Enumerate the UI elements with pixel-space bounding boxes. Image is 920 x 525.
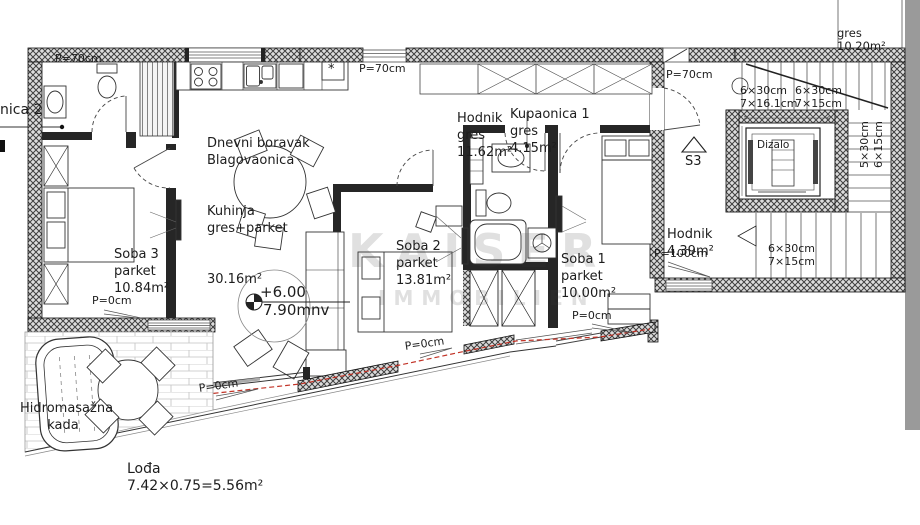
vent-shafts xyxy=(470,270,535,326)
label-living-room: Dnevni boravakBlagovaonica Kuhinjagres+p… xyxy=(207,101,310,305)
label-level-elevation: +6.00 xyxy=(260,283,306,302)
label-loda: Lođa7.42×0.75=5.56m² xyxy=(127,428,263,511)
wc-fixtures xyxy=(44,64,117,118)
label-parapet-70-right: P=70cm xyxy=(666,68,713,82)
label-dizalo: Dizalo xyxy=(757,139,789,152)
shower-closet xyxy=(140,62,174,136)
parapet-bands xyxy=(298,322,655,392)
chair-icon xyxy=(307,187,336,219)
label-stairs-side-2: 6×15cm xyxy=(872,121,885,168)
label-stairs-top-right: 6×30cm7×15cm xyxy=(795,58,842,123)
label-level-height: 7.90mnv xyxy=(263,301,329,320)
s3-triangle-icon xyxy=(682,137,706,152)
label-kitchen-star: * xyxy=(328,61,335,78)
tv-icon xyxy=(176,200,181,240)
label-soba2: Soba 2parket13.81m² xyxy=(396,204,451,306)
label-parapet-0-soba1: P=0cm xyxy=(572,309,612,323)
label-kupaonica: Kupaonica 1gres4.15m² xyxy=(510,72,590,174)
label-soba1: Soba 1parket10.00m² xyxy=(561,217,616,319)
label-s3: S3 xyxy=(685,153,702,170)
label-stairs-top-left: 6×30cm7×16.1cm xyxy=(740,58,797,123)
label-parapet-0-soba3: P=0cm xyxy=(92,294,132,308)
label-parapet-100: P=100cm xyxy=(654,247,708,261)
toilet-icon xyxy=(487,193,511,213)
label-hodnik-main: Hodnikgres11.62m² xyxy=(457,76,512,178)
label-stairs-bottom: 6×30cm7×15cm xyxy=(768,216,815,281)
kitchen xyxy=(176,62,348,90)
label-hodnik-stairwell: Hodnik4.39m² xyxy=(667,192,714,277)
label-hot-tub: Hidromasažnakada xyxy=(20,366,106,451)
toilet-icon xyxy=(98,76,116,98)
right-gray-band xyxy=(905,0,920,430)
stairs-direction-arrow-icon xyxy=(738,226,756,246)
tv-icon xyxy=(462,228,468,264)
elevator xyxy=(726,110,848,212)
label-gres-top-room: gres10.20m² xyxy=(837,1,886,66)
label-neighbor-unit: nica 2 xyxy=(0,102,42,119)
label-parapet-70-mid: P=70cm xyxy=(359,62,406,76)
toilet-tank-icon xyxy=(476,190,486,216)
floor-plan: KAISER IMMOBILIEN nica 2 P=70cm P=70cm P… xyxy=(0,0,920,525)
label-parapet-70-left: P=70cm xyxy=(55,52,102,66)
label-stairs-side-1: 5×30cm xyxy=(858,121,871,168)
